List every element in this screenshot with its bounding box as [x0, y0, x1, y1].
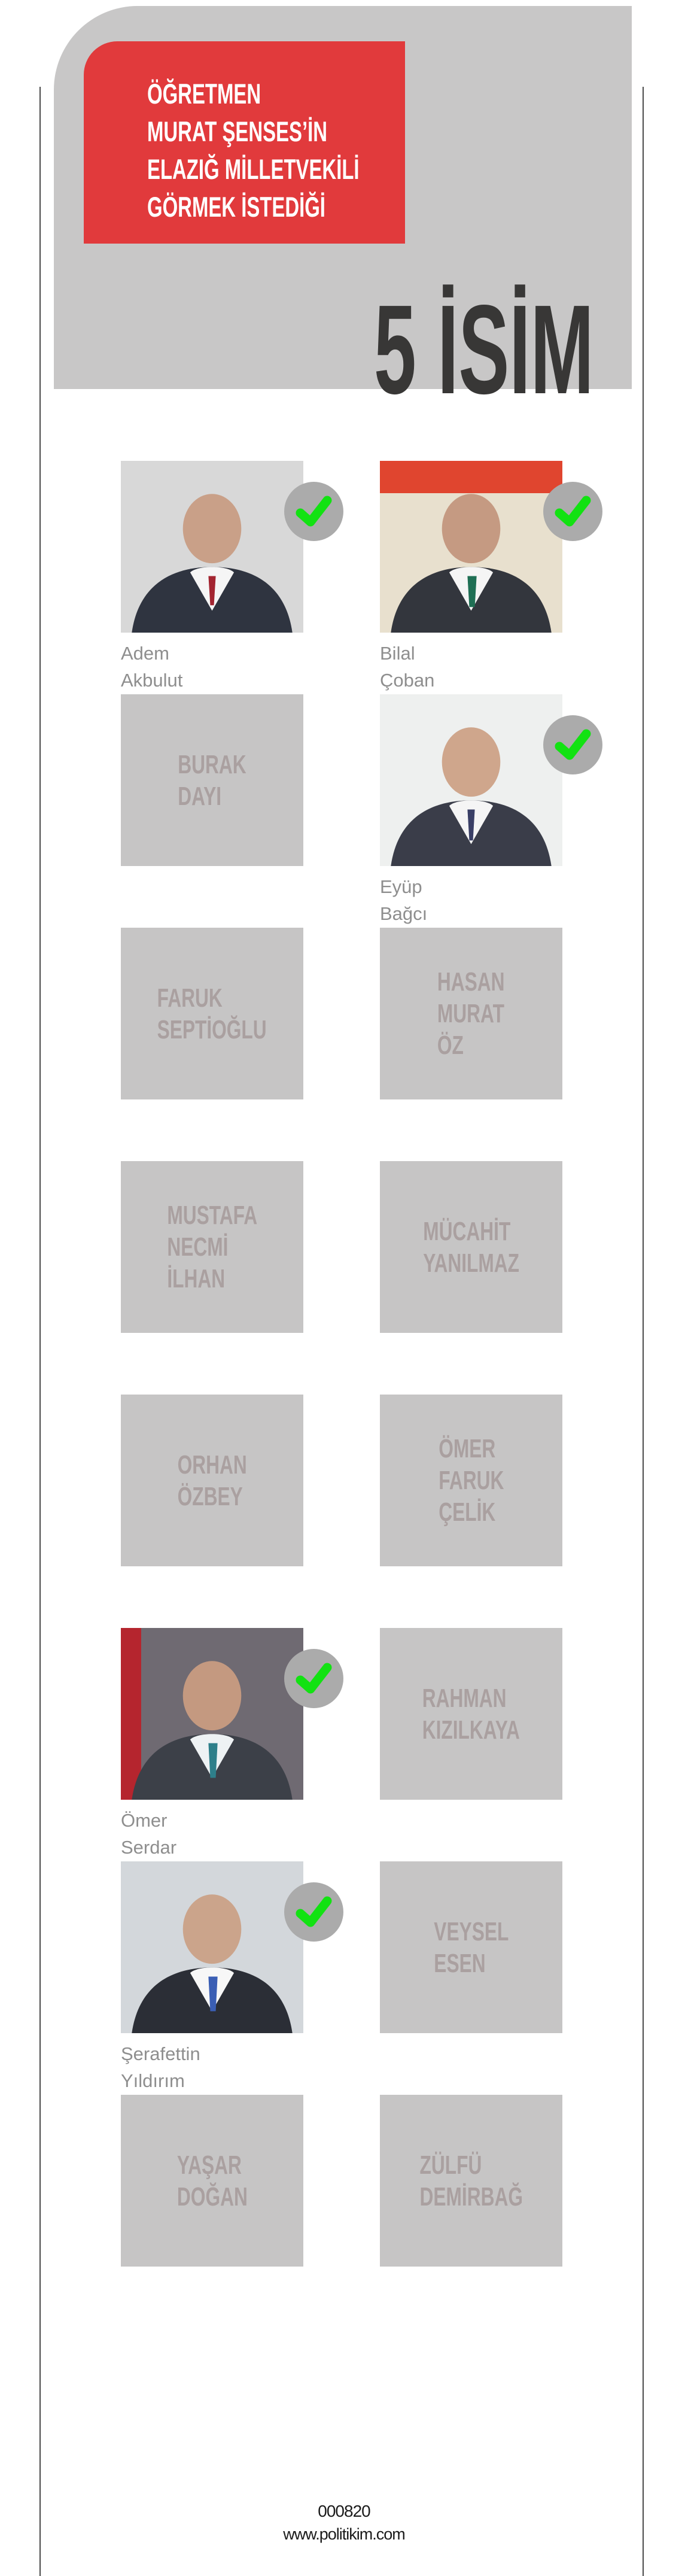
placeholder-line: FARUK [439, 1465, 504, 1496]
placeholder-line: MURAT [437, 998, 505, 1029]
selected-check-icon [284, 482, 343, 541]
placeholder-box: MÜCAHİT YANILMAZ [380, 1161, 562, 1333]
photo-image [121, 461, 303, 633]
selected-check-icon [543, 715, 602, 774]
person-silhouette [380, 694, 562, 866]
placeholder-line: DAYI [178, 780, 246, 812]
first-name: Ömer [121, 1807, 303, 1834]
placeholder-name: BURAK DAYI [178, 749, 246, 812]
photo-eyup-bagci [380, 694, 562, 866]
placeholder-name: MUSTAFA NECMİ İLHAN [167, 1199, 257, 1295]
selected-check-icon [284, 1649, 343, 1708]
placeholder-line: ORHAN [177, 1449, 246, 1481]
placeholder-line: NECMİ [167, 1231, 257, 1263]
header-title-line-1: ÖĞRETMEN [147, 75, 360, 113]
candidate-card-veysel-esen: VEYSEL ESEN [380, 1861, 562, 2033]
placeholder-name: RAHMAN KIZILKAYA [422, 1682, 520, 1746]
candidate-name: Eyüp Bağcı [380, 873, 562, 927]
candidate-card-omer-serdar: Ömer Serdar [121, 1628, 303, 1861]
placeholder-line: ÇELİK [439, 1496, 504, 1528]
placeholder-line: ZÜLFÜ [419, 2149, 522, 2181]
candidate-card-omer-faruk-celik: ÖMER FARUK ÇELİK [380, 1395, 562, 1566]
candidate-card-serafettin-yildirim: Şerafettin Yıldırım [121, 1861, 303, 2094]
placeholder-line: DEMİRBAĞ [419, 2181, 522, 2213]
photo-adem-akbulut [121, 461, 303, 633]
placeholder-box: ZÜLFÜ DEMİRBAĞ [380, 2095, 562, 2267]
placeholder-line: KIZILKAYA [422, 1714, 520, 1746]
placeholder-name: ORHAN ÖZBEY [177, 1449, 246, 1512]
selected-check-icon [543, 482, 602, 541]
photo-omer-serdar [121, 1628, 303, 1800]
placeholder-line: RAHMAN [422, 1682, 520, 1714]
candidate-name: Adem Akbulut [121, 640, 303, 694]
placeholder-name: ZÜLFÜ DEMİRBAĞ [419, 2149, 522, 2213]
left-border-line [39, 87, 41, 2576]
placeholder-line: ESEN [434, 1948, 509, 1979]
placeholder-box: YAŞAR DOĞAN [121, 2095, 303, 2267]
photo-serafettin-yildirim [121, 1861, 303, 2033]
candidate-card-orhan-ozbey: ORHAN ÖZBEY [121, 1395, 303, 1566]
person-silhouette [121, 461, 303, 633]
placeholder-line: YAŞAR [177, 2149, 248, 2181]
placeholder-name: ÖMER FARUK ÇELİK [439, 1433, 504, 1528]
last-name: Bağcı [380, 900, 562, 927]
candidate-card-bilal-coban: Bilal Çoban [380, 461, 562, 694]
candidate-card-adem-akbulut: Adem Akbulut [121, 461, 303, 694]
placeholder-box: FARUK SEPTİOĞLU [121, 928, 303, 1099]
placeholder-line: BURAK [178, 749, 246, 780]
count-title: 5 İSİM [374, 286, 594, 413]
candidate-card-hasan-murat-oz: HASAN MURAT ÖZ [380, 928, 562, 1099]
placeholder-line: MÜCAHİT [423, 1216, 519, 1247]
candidate-card-eyup-bagci: Eyüp Bağcı [380, 694, 562, 927]
photo-image [380, 694, 562, 866]
placeholder-line: SEPTİOĞLU [157, 1014, 267, 1046]
header-title-line-4: GÖRMEK İSTEDİĞİ [147, 188, 360, 226]
person-silhouette [121, 1628, 303, 1800]
first-name: Adem [121, 640, 303, 667]
placeholder-box: ÖMER FARUK ÇELİK [380, 1395, 562, 1566]
photo-image [121, 1861, 303, 2033]
title-red-box: ÖĞRETMEN MURAT ŞENSES’İN ELAZIĞ MİLLETVE… [84, 41, 405, 244]
candidate-card-yasar-dogan: YAŞAR DOĞAN [121, 2095, 303, 2267]
candidate-card-mucahit-yanilmaz: MÜCAHİT YANILMAZ [380, 1161, 562, 1333]
header-title-line-2: MURAT ŞENSES’İN [147, 113, 360, 150]
placeholder-box: ORHAN ÖZBEY [121, 1395, 303, 1566]
photo-image [121, 1628, 303, 1800]
footer-website: www.politikim.com [0, 2522, 688, 2546]
placeholder-box: HASAN MURAT ÖZ [380, 928, 562, 1099]
placeholder-box: MUSTAFA NECMİ İLHAN [121, 1161, 303, 1333]
placeholder-line: ÖZ [437, 1029, 505, 1061]
header-title: ÖĞRETMEN MURAT ŞENSES’İN ELAZIĞ MİLLETVE… [147, 75, 360, 226]
person-silhouette [380, 461, 562, 633]
placeholder-line: ÖMER [439, 1433, 504, 1465]
placeholder-name: MÜCAHİT YANILMAZ [423, 1216, 519, 1279]
placeholder-name: VEYSEL ESEN [434, 1916, 509, 1979]
placeholder-line: FARUK [157, 982, 267, 1014]
candidate-name: Ömer Serdar [121, 1807, 303, 1861]
placeholder-box: VEYSEL ESEN [380, 1861, 562, 2033]
selected-check-icon [284, 1882, 343, 1942]
right-border-line [643, 87, 644, 2576]
last-name: Serdar [121, 1834, 303, 1861]
placeholder-line: İLHAN [167, 1263, 257, 1295]
placeholder-line: VEYSEL [434, 1916, 509, 1948]
placeholder-box: BURAK DAYI [121, 694, 303, 866]
footer: 000820 www.politikim.com [0, 2501, 688, 2546]
placeholder-line: YANILMAZ [423, 1247, 519, 1279]
candidate-name: Bilal Çoban [380, 640, 562, 694]
placeholder-name: YAŞAR DOĞAN [177, 2149, 248, 2213]
candidate-card-mustafa-necmi-ilhan: MUSTAFA NECMİ İLHAN [121, 1161, 303, 1333]
candidate-card-faruk-septioglu: FARUK SEPTİOĞLU [121, 928, 303, 1099]
placeholder-name: HASAN MURAT ÖZ [437, 966, 505, 1061]
placeholder-box: RAHMAN KIZILKAYA [380, 1628, 562, 1800]
last-name: Akbulut [121, 667, 303, 694]
candidate-name: Şerafettin Yıldırım [121, 2040, 303, 2094]
last-name: Yıldırım [121, 2067, 303, 2094]
candidate-card-burak-dayi: BURAK DAYI [121, 694, 303, 866]
header-title-line-3: ELAZIĞ MİLLETVEKİLİ [147, 150, 360, 188]
footer-code: 000820 [0, 2501, 688, 2522]
placeholder-line: ÖZBEY [177, 1481, 246, 1512]
first-name: Şerafettin [121, 2040, 303, 2067]
placeholder-line: MUSTAFA [167, 1199, 257, 1231]
photo-image [380, 461, 562, 633]
placeholder-line: DOĞAN [177, 2181, 248, 2213]
candidate-card-zulfu-demirbag: ZÜLFÜ DEMİRBAĞ [380, 2095, 562, 2267]
first-name: Bilal [380, 640, 562, 667]
first-name: Eyüp [380, 873, 562, 900]
placeholder-line: HASAN [437, 966, 505, 998]
last-name: Çoban [380, 667, 562, 694]
photo-bilal-coban [380, 461, 562, 633]
placeholder-name: FARUK SEPTİOĞLU [157, 982, 267, 1046]
candidate-card-rahman-kizilkaya: RAHMAN KIZILKAYA [380, 1628, 562, 1800]
person-silhouette [121, 1861, 303, 2033]
